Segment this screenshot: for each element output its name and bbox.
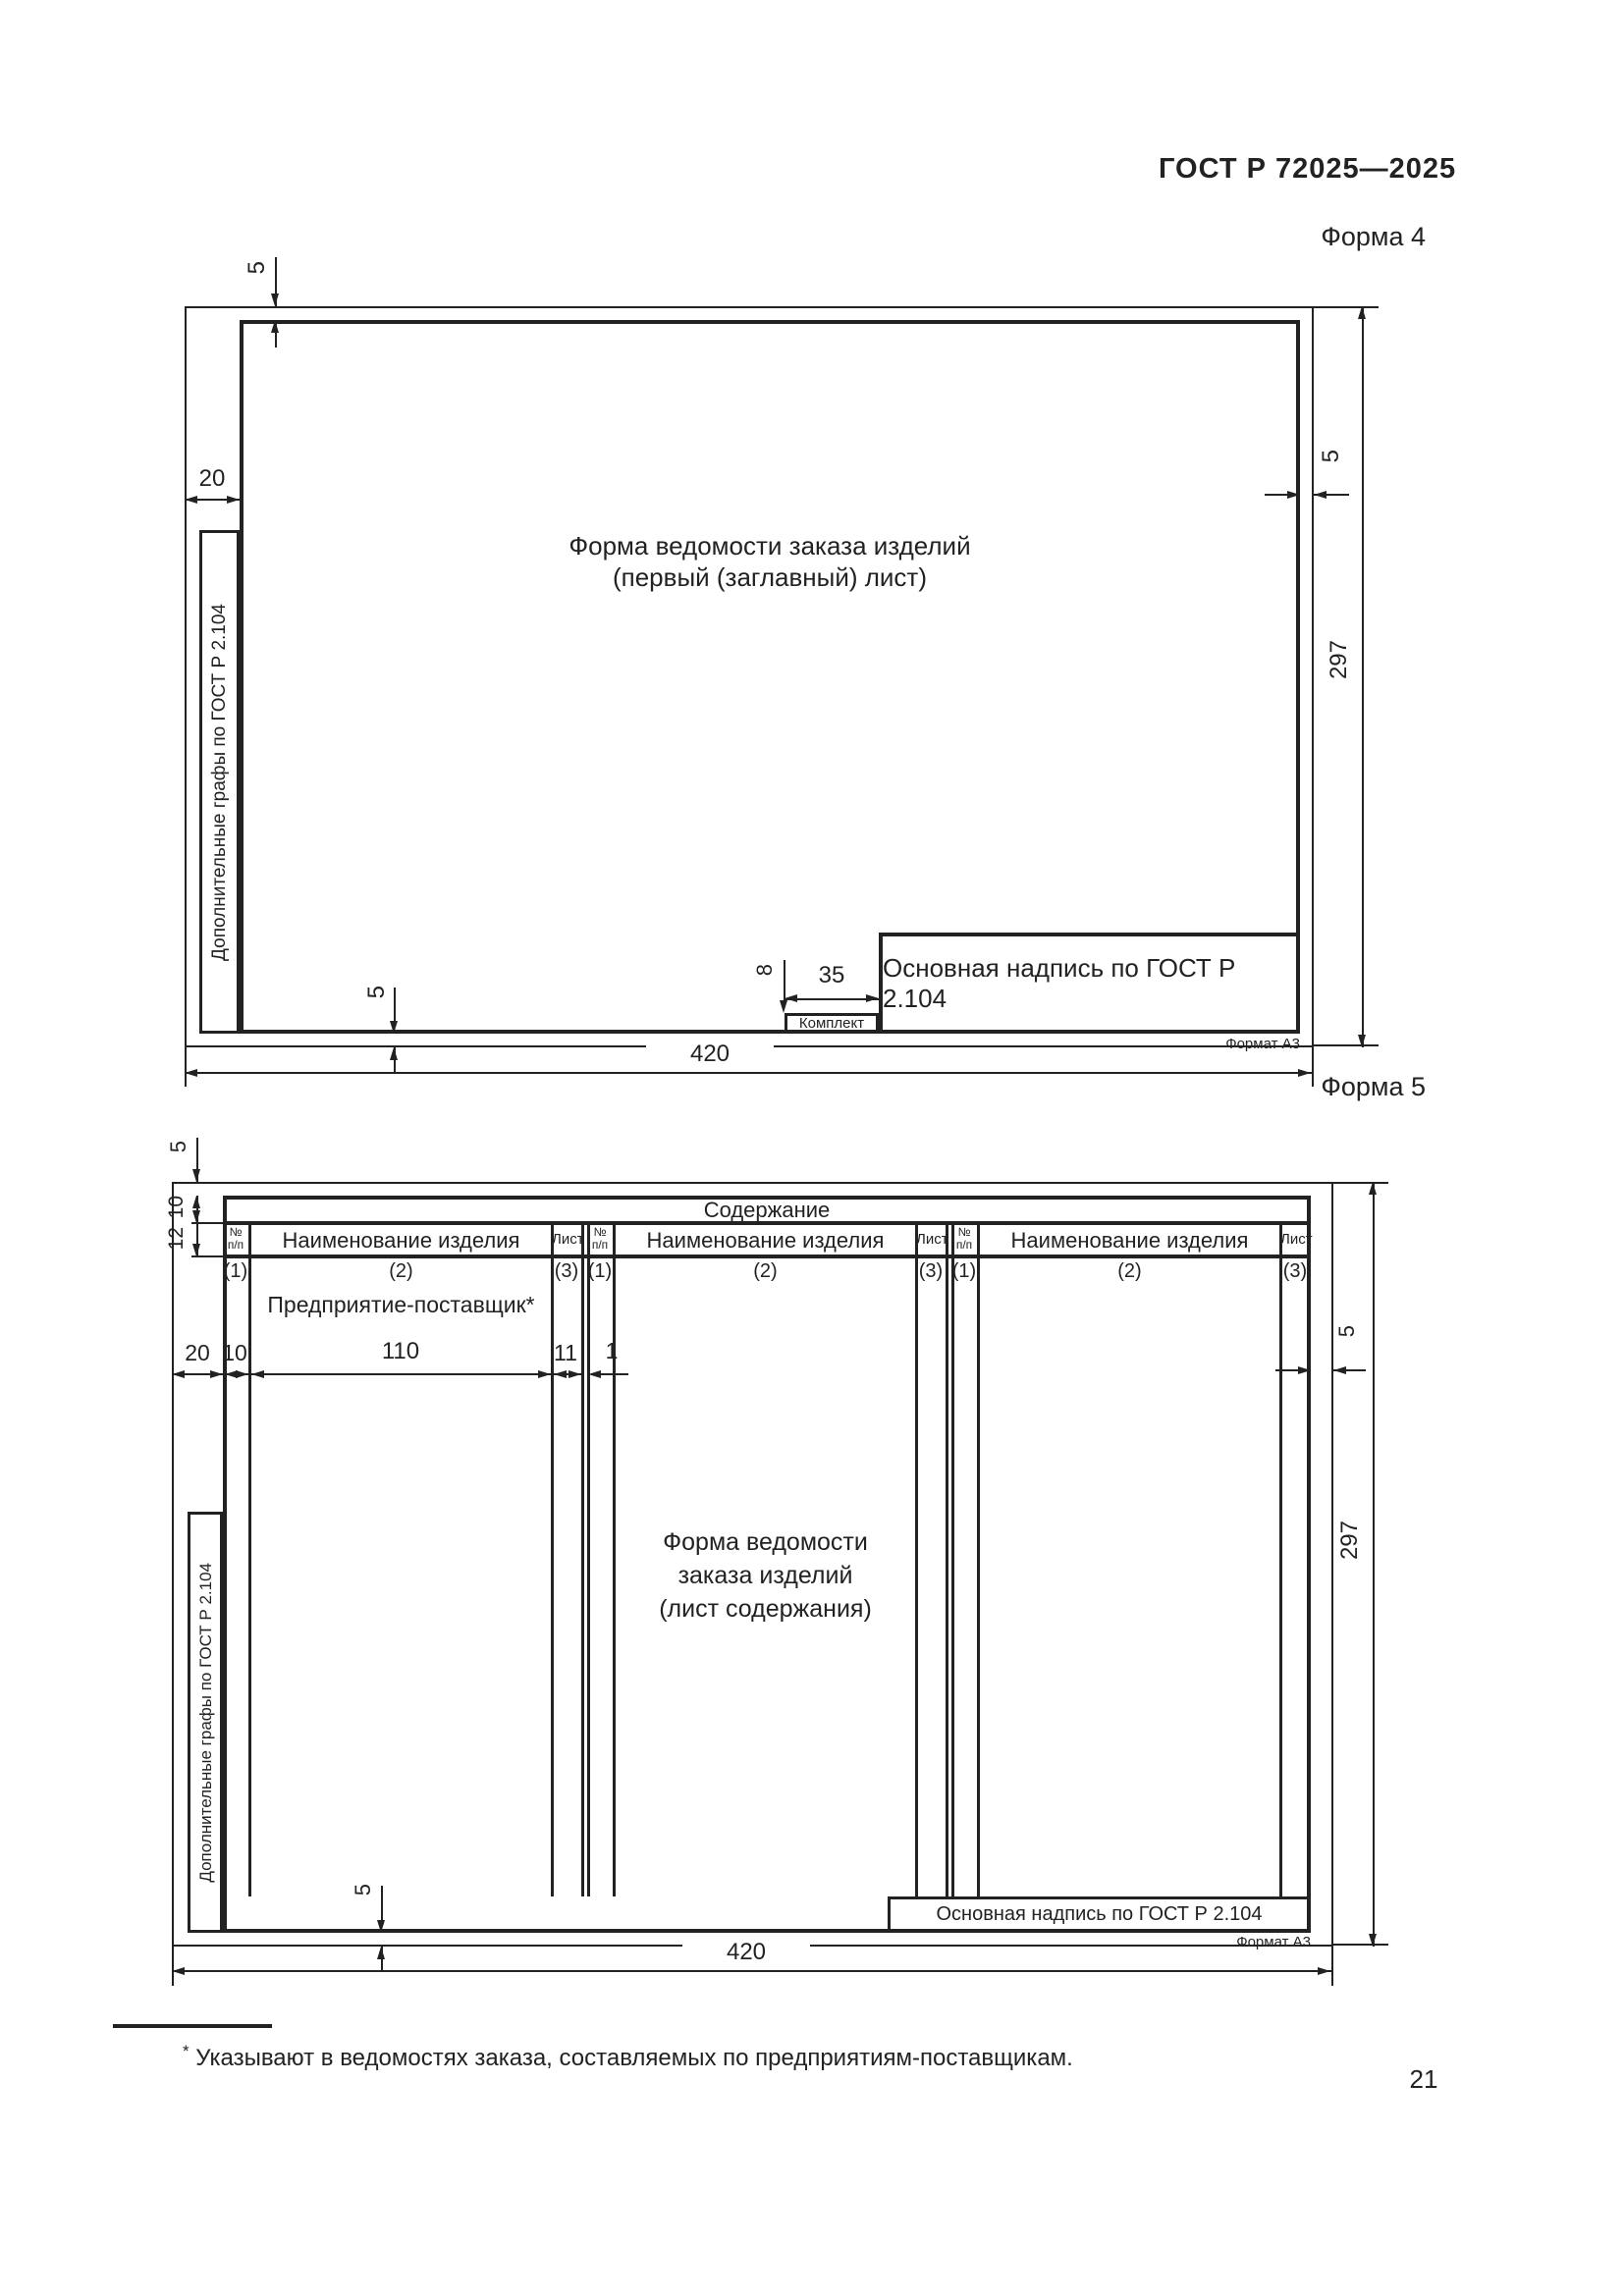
dimension-line [1362, 306, 1364, 1047]
form5-margin-note: Дополнительные графы по ГОСТ Р 2.104 [197, 1563, 214, 1883]
form5-dim-bottom: 5 [352, 1884, 374, 1896]
form4-komplekt-label: Комплект [799, 1015, 864, 1032]
arrow-right-icon [1298, 1366, 1311, 1374]
standard-code: ГОСТ Р 72025—2025 [1159, 153, 1456, 186]
form5-caption: Форма 5 [1229, 1072, 1426, 1102]
form5-dim-top: 5 [168, 1141, 189, 1152]
form5-dim-col-name: 110 [342, 1338, 460, 1365]
col-ref-num: (1) [585, 1260, 615, 1283]
arrow-left-icon [172, 1967, 185, 1975]
arrow-down-icon [390, 1021, 398, 1034]
arrow-up-icon [271, 320, 279, 333]
table-column-line [587, 1225, 590, 1896]
col-num-header-bottom: п/п [221, 1239, 250, 1252]
arrow-left-icon [1333, 1366, 1346, 1374]
col-num-header-bottom: п/п [949, 1239, 979, 1252]
arrow-down-icon [192, 1169, 200, 1182]
col-num-header-bottom: п/п [585, 1239, 615, 1252]
form5-center-note: Форма ведомости заказа изделий (лист сод… [616, 1525, 915, 1626]
form4-drawing: Дополнительные графы по ГОСТ Р 2.104 Фор… [185, 306, 1314, 1047]
form5-format-label: Формат А3 [1075, 1934, 1311, 1950]
arrow-up-icon [390, 1047, 398, 1060]
arrow-right-icon [236, 1370, 248, 1378]
form4-center-line2: (первый (заглавный) лист) [338, 561, 1202, 593]
form4-center-note: Форма ведомости заказа изделий (первый (… [338, 530, 1202, 593]
form4-dim-right: 5 [1320, 450, 1343, 462]
dimension-line [1373, 1182, 1375, 1947]
form4-margin-note: Дополнительные графы по ГОСТ Р 2.104 [210, 604, 229, 961]
dimension-line [381, 1886, 383, 1920]
form5-center-line2: заказа изделий [616, 1559, 915, 1592]
col-sheet-header: Лист [916, 1231, 946, 1248]
form5-margin-box: Дополнительные графы по ГОСТ Р 2.104 [188, 1512, 223, 1933]
col-ref-name: (2) [251, 1260, 551, 1283]
extension-line [185, 1047, 187, 1087]
arrow-right-icon [227, 496, 240, 504]
form5-dim-height: 297 [1338, 1521, 1362, 1560]
footnote: * Указывают в ведомостях заказа, составл… [183, 2042, 1073, 2072]
page-number: 21 [1394, 2065, 1453, 2095]
form4-frame [240, 320, 1300, 1034]
arrow-down-icon [1358, 1035, 1366, 1047]
col-num-header: № п/п [221, 1226, 250, 1252]
table-row-line [223, 1255, 1311, 1258]
extension-line [1314, 306, 1379, 308]
form5-dim-row2: 12 [166, 1227, 187, 1250]
col-num-header: № п/п [949, 1226, 979, 1252]
form5-center-line1: Форма ведомости [616, 1525, 915, 1559]
table-column-line [977, 1225, 980, 1896]
document-page: ГОСТ Р 72025—2025 Форма 4 Дополнительные… [0, 0, 1624, 2296]
form5-dim-width: 420 [682, 1939, 810, 1966]
arrow-up-icon [192, 1196, 200, 1208]
footnote-marker: * [183, 2042, 189, 2060]
col-num-header: № п/п [585, 1226, 615, 1252]
col-sheet-header: Лист [1280, 1231, 1310, 1248]
dimension-line [601, 1373, 628, 1375]
form5-center-line3: (лист содержания) [616, 1592, 915, 1626]
form5-dim-gap: 1 [600, 1338, 623, 1363]
extension-line [191, 1222, 223, 1224]
extension-line [1314, 1044, 1379, 1046]
form4-format-label: Формат А3 [1064, 1036, 1300, 1052]
dimension-line [785, 998, 879, 1000]
col-name-header: Наименование изделия [980, 1228, 1279, 1253]
arrow-down-icon [377, 1920, 385, 1933]
arrow-right-icon [538, 1370, 551, 1378]
arrow-up-icon [1358, 306, 1366, 319]
form4-dim-bottom: 5 [365, 986, 389, 998]
form4-komplekt-box: Комплект [785, 1013, 879, 1034]
table-title: Содержание [223, 1198, 1311, 1222]
arrow-left-icon [185, 1069, 197, 1077]
form4-margin-box: Дополнительные графы по ГОСТ Р 2.104 [199, 530, 240, 1034]
arrow-up-icon [377, 1947, 385, 1959]
form5-dim-right: 5 [1336, 1325, 1358, 1337]
col-name-header: Наименование изделия [616, 1228, 915, 1253]
arrow-left-icon [172, 1370, 185, 1378]
table-column-line [946, 1225, 948, 1896]
extension-line [1333, 1182, 1388, 1184]
form5-dim-row1: 10 [166, 1196, 187, 1218]
form4-dim-height: 297 [1327, 640, 1351, 679]
form4-center-line1: Форма ведомости заказа изделий [338, 530, 1202, 561]
form5-title-block: Основная надпись по ГОСТ Р 2.104 [888, 1896, 1311, 1933]
extension-line [1333, 1944, 1388, 1946]
table-column-line [551, 1225, 554, 1896]
form5-drawing: Содержание № п/п Наименование изделия Ли… [172, 1182, 1333, 1947]
col-ref-sheet: (3) [552, 1260, 581, 1283]
arrow-left-icon [785, 994, 797, 1002]
form4-caption: Форма 4 [1229, 222, 1426, 252]
form5-dim-col-num: 10 [217, 1340, 252, 1365]
table-column-line [951, 1225, 954, 1896]
col-ref-num: (1) [949, 1260, 979, 1283]
extension-line [172, 1947, 174, 1986]
form4-dim-komplekt-height: 8 [754, 964, 776, 976]
col-sheet-header: Лист [552, 1231, 581, 1248]
arrow-left-icon [588, 1370, 601, 1378]
form4-dim-left: 20 [185, 465, 240, 493]
dimension-line [394, 988, 396, 1021]
form5-dim-col-sheet: 11 [543, 1340, 588, 1365]
arrow-right-icon [1287, 491, 1300, 499]
form5-title-block-label: Основная надпись по ГОСТ Р 2.104 [937, 1903, 1263, 1926]
form4-title-block: Основная надпись по ГОСТ Р 2.104 [879, 933, 1300, 1034]
form4-title-block-label: Основная надпись по ГОСТ Р 2.104 [883, 953, 1296, 1014]
table-column-line [1279, 1225, 1282, 1896]
table-column-line [915, 1225, 918, 1896]
arrow-left-icon [251, 1370, 264, 1378]
arrow-left-icon [1314, 491, 1326, 499]
extension-line [1331, 1947, 1333, 1986]
col-ref-sheet: (3) [1280, 1260, 1310, 1283]
form5-supplier-note: Предприятие-поставщик* [251, 1292, 551, 1317]
arrow-down-icon [271, 294, 279, 306]
arrow-left-icon [185, 496, 197, 504]
dimension-line [185, 1072, 1314, 1074]
form4-dim-komplekt-width: 35 [785, 962, 879, 989]
col-ref-name: (2) [616, 1260, 915, 1283]
arrow-down-icon [1369, 1934, 1377, 1947]
arrow-right-icon [1318, 1967, 1330, 1975]
arrow-right-icon [568, 1370, 581, 1378]
form5-dim-left: 20 [172, 1340, 223, 1365]
form4-dim-top: 5 [245, 261, 269, 274]
table-column-line [581, 1225, 584, 1896]
arrow-left-icon [554, 1370, 567, 1378]
arrow-right-icon [210, 1370, 223, 1378]
arrow-up-icon [1369, 1182, 1377, 1195]
arrow-right-icon [866, 994, 879, 1002]
footnote-text: Указывают в ведомостях заказа, составляе… [195, 2045, 1073, 2071]
form4-dim-width: 420 [646, 1041, 774, 1068]
footnote-rule [113, 2024, 272, 2028]
col-ref-name: (2) [980, 1260, 1279, 1283]
dimension-line [172, 1970, 1333, 1972]
table-column-line [248, 1225, 251, 1896]
extension-line [191, 1255, 223, 1257]
col-name-header: Наименование изделия [251, 1228, 551, 1253]
col-ref-sheet: (3) [916, 1260, 946, 1283]
col-ref-num: (1) [221, 1260, 250, 1283]
